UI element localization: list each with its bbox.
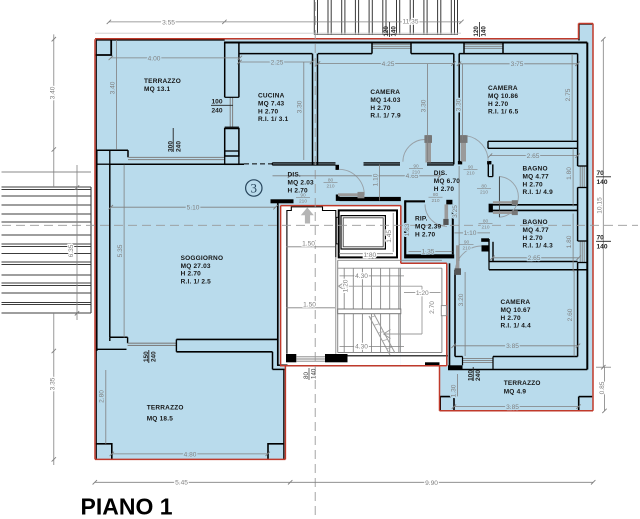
svg-text:PIANO 1: PIANO 1 xyxy=(81,494,173,519)
svg-text:9.90: 9.90 xyxy=(425,480,438,487)
svg-text:H 2.70: H 2.70 xyxy=(258,108,279,115)
svg-text:10.15: 10.15 xyxy=(597,197,604,214)
svg-text:R.I. 1/ 4.4: R.I. 1/ 4.4 xyxy=(501,323,532,330)
svg-text:2.25: 2.25 xyxy=(271,59,284,66)
svg-text:1.45: 1.45 xyxy=(386,230,393,243)
svg-text:H 2.70: H 2.70 xyxy=(370,105,391,112)
svg-text:210: 210 xyxy=(299,199,307,205)
svg-text:120: 120 xyxy=(473,26,480,37)
svg-text:3.55: 3.55 xyxy=(162,20,175,27)
svg-text:3.85: 3.85 xyxy=(506,404,519,411)
svg-text:240: 240 xyxy=(176,141,183,152)
svg-text:240: 240 xyxy=(150,351,157,362)
svg-text:1.80: 1.80 xyxy=(566,167,573,180)
svg-text:MQ 14.03: MQ 14.03 xyxy=(370,97,400,104)
svg-text:4.30: 4.30 xyxy=(355,344,368,351)
svg-text:MQ 4.77: MQ 4.77 xyxy=(523,173,550,180)
svg-text:H 2.70: H 2.70 xyxy=(181,271,202,278)
svg-text:140: 140 xyxy=(391,26,398,37)
svg-text:3: 3 xyxy=(251,180,258,195)
svg-text:H 2.70: H 2.70 xyxy=(523,181,544,188)
svg-text:DIS.: DIS. xyxy=(434,170,447,177)
svg-text:3.75: 3.75 xyxy=(511,61,524,68)
svg-text:210: 210 xyxy=(466,171,474,177)
svg-text:MQ 2.03: MQ 2.03 xyxy=(288,179,315,186)
svg-text:1.20: 1.20 xyxy=(416,290,429,297)
svg-text:1.80: 1.80 xyxy=(363,252,376,259)
svg-text:140: 140 xyxy=(481,26,488,37)
svg-text:210: 210 xyxy=(462,246,470,252)
svg-text:1.50: 1.50 xyxy=(302,241,315,248)
svg-text:SOGGIORNO: SOGGIORNO xyxy=(181,255,224,262)
svg-text:R.I. 1/ 3.1: R.I. 1/ 3.1 xyxy=(258,116,289,123)
svg-text:MQ 7.43: MQ 7.43 xyxy=(258,100,285,107)
svg-text:H 2.70: H 2.70 xyxy=(415,231,436,238)
svg-text:100: 100 xyxy=(212,99,223,106)
svg-text:MQ 10.67: MQ 10.67 xyxy=(501,307,531,314)
svg-text:H 2.70: H 2.70 xyxy=(523,235,544,242)
svg-text:120: 120 xyxy=(383,26,390,37)
svg-text:0.85: 0.85 xyxy=(599,381,606,394)
svg-text:3.30: 3.30 xyxy=(297,100,304,113)
svg-text:210: 210 xyxy=(326,184,334,190)
svg-text:R.I. 1/ 4.9: R.I. 1/ 4.9 xyxy=(523,189,554,196)
svg-text:MQ 13.1: MQ 13.1 xyxy=(144,86,171,93)
svg-text:3.20: 3.20 xyxy=(458,293,465,306)
svg-text:4.80: 4.80 xyxy=(184,451,197,458)
svg-text:TERRAZZO: TERRAZZO xyxy=(504,380,541,387)
svg-text:11.35: 11.35 xyxy=(402,19,418,26)
svg-text:210: 210 xyxy=(431,198,439,204)
svg-text:4.30: 4.30 xyxy=(355,273,368,280)
svg-text:1.10: 1.10 xyxy=(464,230,477,237)
svg-text:MQ 2.39: MQ 2.39 xyxy=(415,223,442,230)
svg-text:2.70: 2.70 xyxy=(429,301,436,314)
svg-text:RIP.: RIP. xyxy=(415,216,428,223)
svg-text:TERRAZZO: TERRAZZO xyxy=(144,78,181,85)
svg-text:240: 240 xyxy=(475,370,482,381)
svg-text:1.80: 1.80 xyxy=(566,235,573,248)
svg-text:3.30: 3.30 xyxy=(456,98,463,111)
svg-text:R.I. 1/ 4.3: R.I. 1/ 4.3 xyxy=(523,243,554,250)
svg-text:MQ 18.5: MQ 18.5 xyxy=(147,416,174,423)
svg-text:MQ 6.70: MQ 6.70 xyxy=(434,178,461,185)
svg-text:MQ 4.77: MQ 4.77 xyxy=(523,227,550,234)
svg-text:1.35: 1.35 xyxy=(422,249,435,256)
svg-text:70: 70 xyxy=(597,235,605,242)
svg-text:210: 210 xyxy=(481,225,489,231)
svg-text:MQ 10.86: MQ 10.86 xyxy=(488,93,518,100)
svg-text:3.35: 3.35 xyxy=(49,377,56,390)
svg-text:H 2.70: H 2.70 xyxy=(288,187,309,194)
svg-text:5.45: 5.45 xyxy=(175,480,188,487)
svg-text:MQ 4.9: MQ 4.9 xyxy=(504,388,527,395)
svg-text:CAMERA: CAMERA xyxy=(501,299,531,306)
svg-text:CAMERA: CAMERA xyxy=(488,85,518,92)
svg-text:BAGNO: BAGNO xyxy=(523,219,548,226)
svg-text:1.20: 1.20 xyxy=(342,279,349,292)
svg-text:5.10: 5.10 xyxy=(187,205,200,212)
svg-text:2.65: 2.65 xyxy=(528,255,541,262)
svg-text:R.I. 1/ 7.9: R.I. 1/ 7.9 xyxy=(370,113,401,120)
svg-text:H 2.70: H 2.70 xyxy=(488,101,509,108)
svg-text:CAMERA: CAMERA xyxy=(370,89,400,96)
svg-text:H 2.70: H 2.70 xyxy=(434,186,455,193)
svg-text:5.35: 5.35 xyxy=(117,244,124,257)
svg-text:3.25: 3.25 xyxy=(452,205,459,218)
svg-text:6.35: 6.35 xyxy=(68,244,75,257)
svg-text:4.25: 4.25 xyxy=(382,61,395,68)
svg-text:1.10: 1.10 xyxy=(373,173,380,186)
svg-text:1.83: 1.83 xyxy=(404,223,411,236)
svg-text:MQ 27.03: MQ 27.03 xyxy=(181,263,211,270)
svg-text:210: 210 xyxy=(480,190,488,196)
svg-text:BAGNO: BAGNO xyxy=(523,166,548,173)
svg-text:3.30: 3.30 xyxy=(421,99,428,112)
svg-text:R.I. 1/ 2.5: R.I. 1/ 2.5 xyxy=(181,279,212,286)
svg-text:2.60: 2.60 xyxy=(567,308,574,321)
svg-text:140: 140 xyxy=(597,179,608,186)
svg-text:3.40: 3.40 xyxy=(110,81,117,94)
svg-text:4.00: 4.00 xyxy=(148,55,161,62)
svg-text:H 2.70: H 2.70 xyxy=(501,315,522,322)
svg-text:1.30: 1.30 xyxy=(451,384,458,397)
svg-text:R.I. 1/ 6.5: R.I. 1/ 6.5 xyxy=(488,109,519,116)
svg-text:2.80: 2.80 xyxy=(98,390,105,403)
svg-text:140: 140 xyxy=(311,368,318,379)
svg-text:TERRAZZO: TERRAZZO xyxy=(147,404,184,411)
svg-text:240: 240 xyxy=(212,108,223,115)
svg-text:2.65: 2.65 xyxy=(527,153,540,160)
svg-text:140: 140 xyxy=(597,244,608,251)
svg-text:CUCINA: CUCINA xyxy=(258,93,285,100)
svg-text:70: 70 xyxy=(597,170,605,177)
svg-text:3.85: 3.85 xyxy=(506,343,519,350)
svg-text:210: 210 xyxy=(412,170,420,176)
svg-text:1.50: 1.50 xyxy=(303,302,316,309)
svg-text:3.40: 3.40 xyxy=(49,86,56,99)
svg-text:DIS.: DIS. xyxy=(288,172,301,179)
svg-text:2.75: 2.75 xyxy=(565,88,572,101)
